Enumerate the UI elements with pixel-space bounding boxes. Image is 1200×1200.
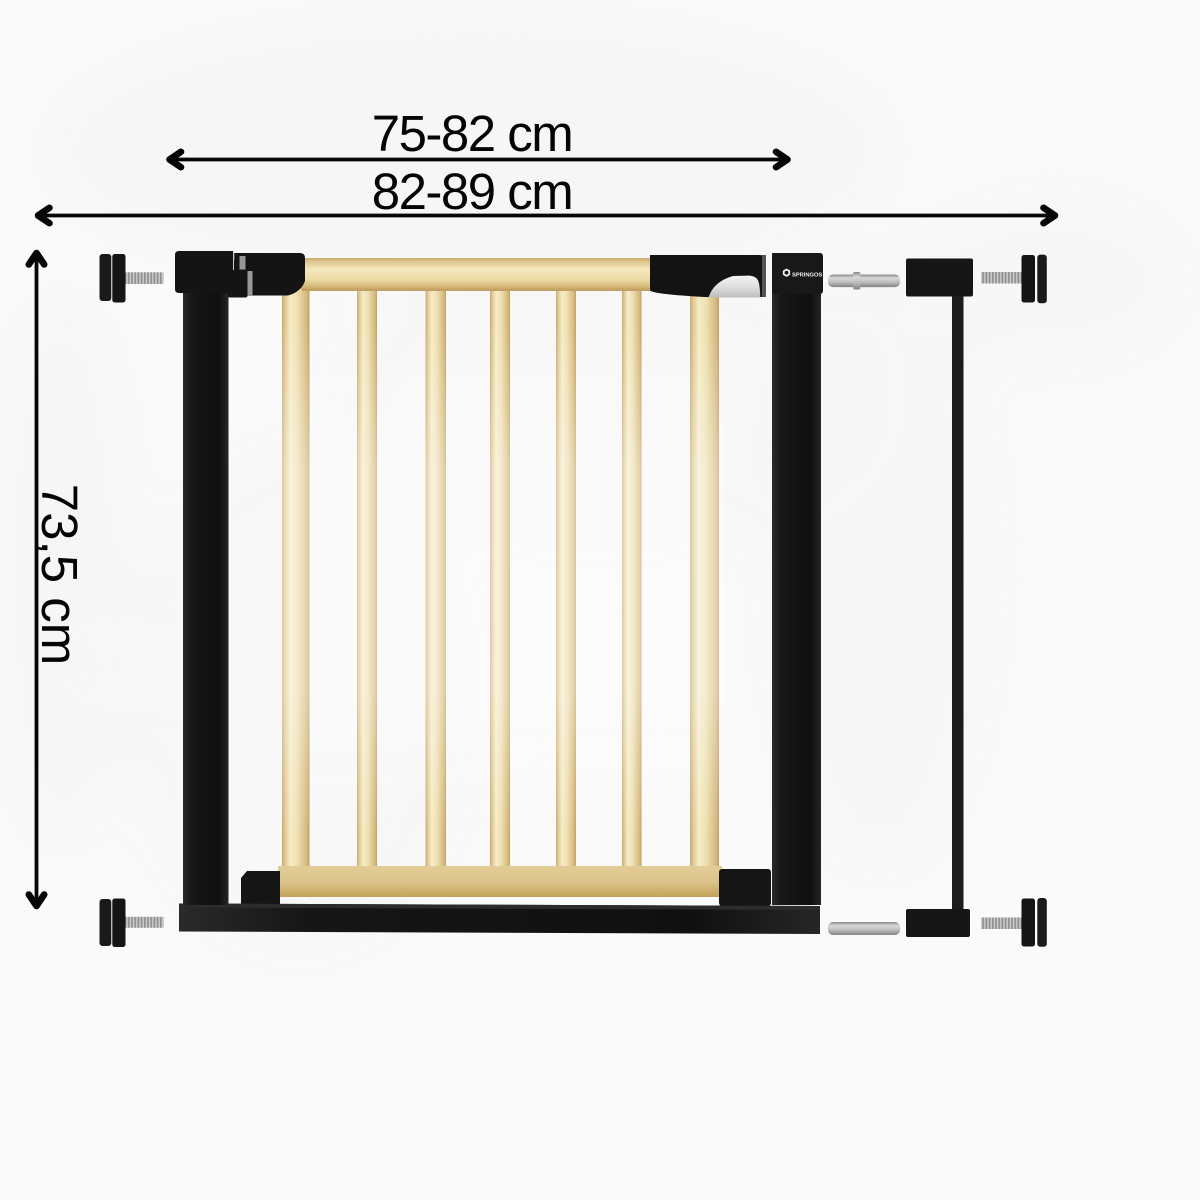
svg-text:75-82 cm: 75-82 cm <box>372 105 573 162</box>
svg-text:73,5 cm: 73,5 cm <box>31 484 88 665</box>
svg-text:SPRINGOS: SPRINGOS <box>792 272 822 278</box>
svg-text:82-89 cm: 82-89 cm <box>372 163 573 220</box>
